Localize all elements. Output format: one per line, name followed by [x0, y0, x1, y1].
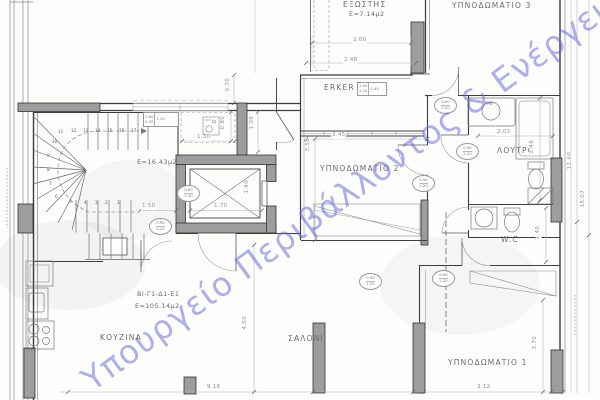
room-label-bedroom3: ΥΠΝΟΔΩΜΑΤΙΟ 3: [452, 1, 532, 10]
door-tag-height: 2.20: [439, 278, 447, 284]
room-label-balcony: ΕΞΩΣΤΗΣ: [343, 0, 386, 9]
door-tag-bedroom1: 0.90 2.20: [432, 270, 455, 287]
stair-step-5: 5: [69, 200, 72, 204]
stair-step-9: 9: [47, 154, 50, 158]
dim-right-1260: 12.60: [568, 152, 574, 169]
dim-bedroom1-width: 3.12: [476, 385, 491, 391]
room-label-erker: ERKER: [324, 83, 355, 92]
stair-step-8: 8: [47, 168, 50, 172]
door-tag-height: 2.20: [463, 151, 471, 157]
apartment-code-label: ΒΙ-Γ1-Δ1-Ε1: [137, 290, 179, 298]
door-tag-bedroom3: 0.90 2.20: [434, 97, 457, 114]
door-tag-entrance: 0.90 2.20: [149, 218, 172, 235]
window-tag-value: 2.45: [145, 120, 153, 125]
dim-bedroom2-depth: 3.58: [306, 138, 312, 151]
door-tag-bathroom: 0.90 2.20: [456, 143, 479, 160]
dim-elevator-door: 1.40: [245, 180, 251, 193]
dim-corridor-width: 1.08: [250, 116, 256, 129]
stair-step-15: 15: [107, 129, 112, 133]
stair-step-16: 16: [119, 129, 124, 133]
room-label-kitchen: ΚΟΥΖΙΝΑ: [100, 333, 142, 342]
window-tag-erker: 1.50 2.20 1.40: [357, 82, 387, 96]
dim-balcony-width: 2.00: [352, 38, 367, 44]
dim-equipment-width: 1.30: [196, 135, 211, 141]
room-label-bedroom2: ΥΠΝΟΔΩΜΑΤΙΟ 2: [320, 164, 400, 173]
stair-step-6: 6: [55, 195, 58, 199]
door-tag-stairhall: 0.90 2.20: [177, 185, 200, 202]
window-tag-col: 2.80 2.45: [144, 113, 155, 126]
dim-bedroom2-width: 3.45: [331, 133, 346, 139]
door-tag-height: 2.20: [441, 105, 449, 111]
stair-step-13: 13: [83, 129, 88, 133]
window-tag-col: 1.40: [369, 83, 379, 95]
room-label-bedroom1: ΥΠΝΟΔΩΜΑΤΙΟ 1: [448, 358, 528, 367]
stair-step-17: 17: [131, 129, 136, 133]
stair-step-10: 10: [52, 140, 57, 144]
stair-step-11: 11: [58, 130, 63, 134]
dim-bedroom1-depth: 3.70: [533, 336, 539, 349]
window-tag-stair: 2.80 2.45 1.20: [143, 112, 179, 127]
dim-step-height: 0.70: [226, 78, 232, 91]
door-tag-height: 2.20: [156, 226, 164, 232]
dim-bottom-total: 9.16: [206, 385, 221, 391]
stairwell-area-label: Ε=16.43μ2: [137, 158, 177, 166]
door-tag-height: 2.20: [366, 281, 374, 287]
dim-elevator-width: 1.70: [213, 204, 228, 210]
balcony-rails: [310, 0, 330, 72]
room-label-living: ΣΑΛΟΝΙ: [288, 334, 324, 343]
door-tag-height: 2.20: [419, 183, 427, 189]
dim-balcony-total: 2.48: [343, 58, 358, 64]
stair-step-14: 14: [95, 129, 100, 133]
dim-right-1507: 15.07: [581, 190, 587, 207]
ghost-marks: [0, 160, 540, 335]
door-tag-bedroom2: 0.90 2.20: [412, 175, 435, 192]
stair-step-12: 12: [71, 129, 76, 133]
stair-step-3: 3: [95, 201, 98, 205]
floor-plan: ΕΞΩΣΤΗΣ Ε=7.14μ2 ΥΠΝΟΔΩΜΑΤΙΟ 3 ERKER ΥΠΝ…: [0, 0, 600, 400]
dim-stair-door: 1.50: [141, 204, 156, 210]
dim-bathroom-depth: 2.46: [530, 140, 536, 153]
window-tag-col: 1.20: [155, 113, 165, 126]
window-tag-value: 1.40: [370, 87, 378, 92]
stair-step-2: 2: [105, 201, 108, 205]
stair-step-7: 7: [49, 182, 52, 186]
window-tag-value: 1.20: [156, 117, 164, 122]
room-area-balcony: Ε=7.14μ2: [349, 10, 385, 18]
door-tag-living: 0.90 2.20: [359, 273, 382, 290]
window-tag-value: 2.20: [359, 89, 367, 94]
stair-step-4: 4: [84, 201, 87, 205]
stair-step-1: 1: [117, 201, 120, 205]
door-tag-height: 2.20: [184, 193, 192, 199]
apartment-area-label: Ε=105.14μ2: [135, 302, 180, 310]
dim-wc-depth: 1.40: [536, 226, 542, 239]
window-tag-col: 1.50 2.20: [358, 83, 369, 95]
dim-bathroom-width: 2.02: [496, 130, 511, 136]
dim-equipment-depth: 0.80: [221, 116, 227, 129]
dim-living-depth: 4.50: [243, 316, 249, 329]
room-label-wc: W.C: [501, 235, 519, 244]
